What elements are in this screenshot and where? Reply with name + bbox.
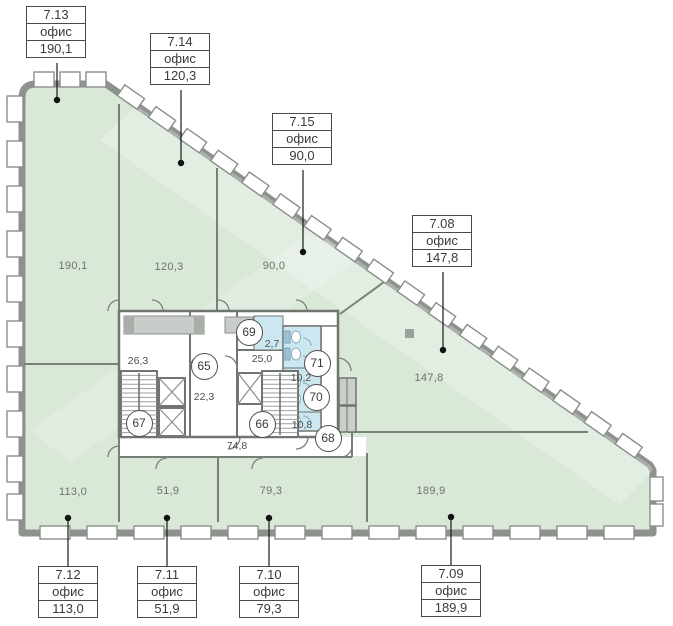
window xyxy=(322,526,352,539)
callout-room-type: офис xyxy=(272,130,332,149)
window xyxy=(650,477,663,501)
callout-room-area: 190,1 xyxy=(26,40,86,59)
callout-room-number: 7.13 xyxy=(26,6,86,25)
callout-room-area: 90,0 xyxy=(272,147,332,166)
window xyxy=(7,276,23,302)
node-69: 69 xyxy=(236,319,263,346)
floor-plan-drawing xyxy=(0,0,673,626)
window xyxy=(275,526,305,539)
callout-room-area: 189,9 xyxy=(421,599,481,618)
room-area-label: 189,9 xyxy=(416,485,445,497)
callout-room-number: 7.09 xyxy=(421,565,481,584)
window xyxy=(87,526,117,539)
callout-room-number: 7.14 xyxy=(150,33,210,52)
room-area-label: 79,3 xyxy=(260,485,283,497)
callout-room-area: 147,8 xyxy=(412,249,472,268)
core-label-hallway: 74,8 xyxy=(227,440,247,452)
core-label-small-room: 2,7 xyxy=(265,338,280,350)
window xyxy=(7,186,23,212)
callout-office-7-15: 7.15 офис 90,0 xyxy=(272,113,332,165)
node-65: 65 xyxy=(191,353,218,380)
callout-room-type: офис xyxy=(26,23,86,42)
window xyxy=(463,526,493,539)
callout-room-number: 7.11 xyxy=(137,566,197,585)
core-label-wc-lower: 10,8 xyxy=(292,419,312,431)
callout-room-type: офис xyxy=(421,582,481,601)
callout-office-7-08: 7.08 офис 147,8 xyxy=(412,215,472,267)
window xyxy=(7,141,23,167)
window xyxy=(510,526,540,539)
window xyxy=(7,411,23,437)
callout-room-type: офис xyxy=(38,583,98,602)
window xyxy=(7,321,23,347)
callout-office-7-14: 7.14 офис 120,3 xyxy=(150,33,210,85)
window xyxy=(34,72,54,87)
window xyxy=(134,526,164,539)
node-66: 66 xyxy=(249,411,276,438)
floor-plan-page: 7.13 офис 190,1 7.14 офис 120,3 7.15 офи… xyxy=(0,0,673,626)
window xyxy=(60,72,80,87)
window xyxy=(7,456,23,482)
callout-room-number: 7.08 xyxy=(412,215,472,234)
window xyxy=(7,366,23,392)
window xyxy=(7,494,23,520)
core-label-right-lobby: 25,0 xyxy=(252,353,272,365)
callout-room-type: офис xyxy=(137,583,197,602)
window xyxy=(650,504,663,526)
callout-office-7-09: 7.09 офис 189,9 xyxy=(421,565,481,617)
window xyxy=(604,526,634,539)
callout-room-area: 113,0 xyxy=(38,600,98,619)
room-area-label: 90,0 xyxy=(263,260,286,272)
window xyxy=(557,526,587,539)
window xyxy=(416,526,446,539)
callout-room-area: 51,9 xyxy=(137,600,197,619)
room-area-label: 51,9 xyxy=(157,485,180,497)
callout-office-7-10: 7.10 офис 79,3 xyxy=(239,566,299,618)
service-shafts xyxy=(339,378,356,432)
core-label-corridor: 22,3 xyxy=(194,391,214,403)
node-68: 68 xyxy=(315,425,342,452)
window xyxy=(7,231,23,257)
node-70: 70 xyxy=(303,384,330,411)
window xyxy=(86,72,106,87)
node-71: 71 xyxy=(304,350,331,377)
callout-room-number: 7.10 xyxy=(239,566,299,585)
node-67: 67 xyxy=(126,410,153,437)
window xyxy=(369,526,399,539)
window xyxy=(40,526,70,539)
room-area-label: 147,8 xyxy=(414,372,443,384)
callout-room-area: 79,3 xyxy=(239,600,299,619)
room-area-label: 190,1 xyxy=(58,260,87,272)
callout-office-7-13: 7.13 офис 190,1 xyxy=(26,6,86,58)
room-area-label: 120,3 xyxy=(154,261,183,273)
column xyxy=(405,329,414,338)
core-label-left-lobby: 26,3 xyxy=(128,355,148,367)
room-area-label: 113,0 xyxy=(59,486,87,498)
vestibule-blocks xyxy=(124,316,253,334)
callout-room-type: офис xyxy=(239,583,299,602)
window xyxy=(181,526,211,539)
callout-room-number: 7.12 xyxy=(38,566,98,585)
callout-room-number: 7.15 xyxy=(272,113,332,132)
callout-office-7-12: 7.12 офис 113,0 xyxy=(38,566,98,618)
callout-room-area: 120,3 xyxy=(150,67,210,86)
callout-office-7-11: 7.11 офис 51,9 xyxy=(137,566,197,618)
callout-room-type: офис xyxy=(150,50,210,69)
window xyxy=(228,526,258,539)
window xyxy=(7,96,23,122)
callout-room-type: офис xyxy=(412,232,472,251)
